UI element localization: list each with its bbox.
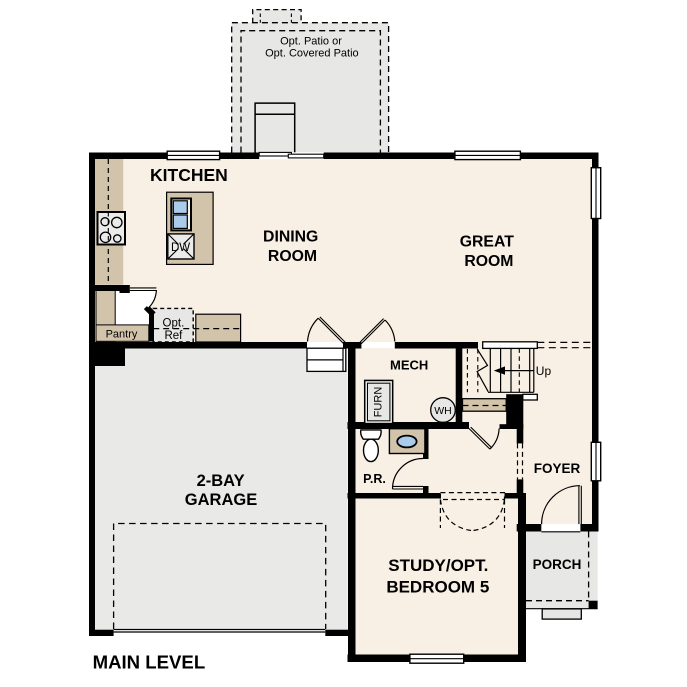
- svg-text:WH: WH: [434, 405, 452, 417]
- svg-text:Up: Up: [536, 364, 552, 378]
- svg-text:Opt. Covered Patio: Opt. Covered Patio: [265, 48, 359, 60]
- svg-text:Opt.: Opt.: [163, 317, 185, 329]
- svg-text:GREAT: GREAT: [460, 234, 514, 251]
- svg-text:ROOM: ROOM: [268, 248, 317, 265]
- svg-text:Pantry: Pantry: [106, 329, 138, 341]
- svg-text:ROOM: ROOM: [464, 253, 513, 270]
- svg-text:FURN: FURN: [373, 387, 385, 418]
- svg-text:P.R.: P.R.: [363, 472, 386, 486]
- svg-text:MAIN LEVEL: MAIN LEVEL: [93, 652, 206, 673]
- svg-text:Opt. Patio or: Opt. Patio or: [280, 35, 342, 47]
- svg-text:KITCHEN: KITCHEN: [150, 165, 228, 185]
- svg-text:FOYER: FOYER: [534, 461, 581, 476]
- svg-text:STUDY/OPT.: STUDY/OPT.: [388, 556, 488, 575]
- svg-text:DINING: DINING: [263, 229, 318, 246]
- svg-text:GARAGE: GARAGE: [185, 491, 257, 509]
- svg-text:2-BAY: 2-BAY: [197, 472, 245, 490]
- svg-text:BEDROOM 5: BEDROOM 5: [386, 577, 489, 596]
- svg-text:PORCH: PORCH: [533, 557, 582, 572]
- svg-text:DW: DW: [171, 242, 190, 254]
- svg-text:Ref: Ref: [164, 330, 183, 342]
- svg-text:MECH: MECH: [390, 358, 428, 373]
